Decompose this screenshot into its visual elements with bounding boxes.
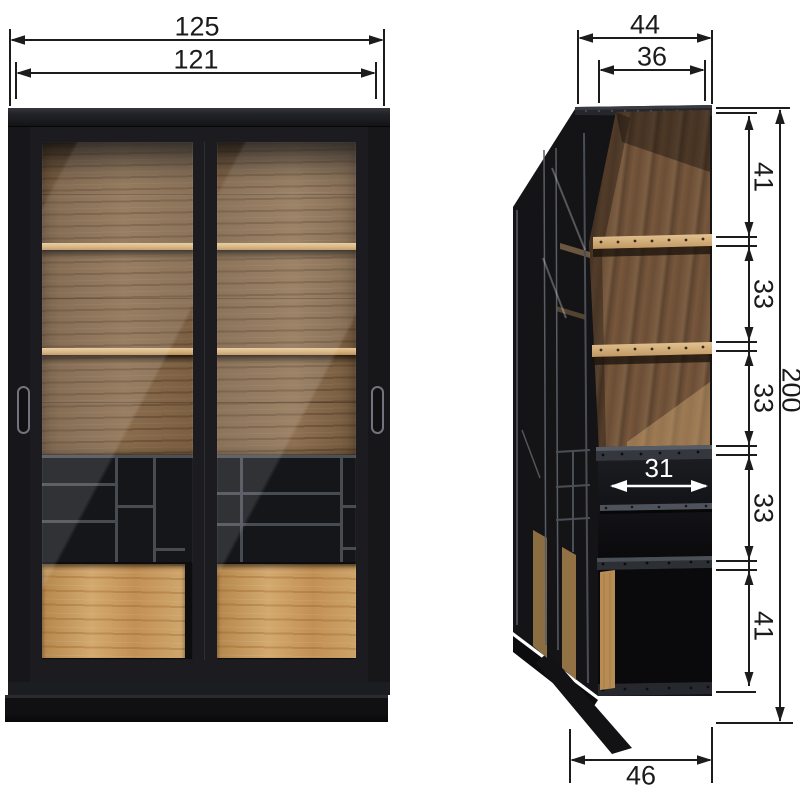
dim-height-segment-5: 41	[750, 611, 777, 641]
dim-interior-shelf-depth: 31	[645, 455, 674, 481]
furniture-dimension-diagram: 125 121 44 36 200 41 33 33 33 41 31 46	[0, 0, 800, 800]
dim-side-depth-outer: 44	[630, 12, 660, 39]
dim-front-width-inner: 121	[173, 47, 218, 74]
dim-side-depth-inner: 36	[637, 44, 667, 71]
dim-total-height: 200	[778, 367, 800, 412]
dim-height-segment-4: 33	[750, 493, 777, 523]
dim-front-width-outer: 125	[174, 14, 219, 41]
dim-base-depth: 46	[626, 763, 656, 790]
dim-height-segment-1: 41	[750, 162, 777, 192]
dim-height-segment-2: 33	[750, 279, 777, 309]
dim-height-segment-3: 33	[750, 383, 777, 413]
dimension-lines	[0, 0, 800, 800]
